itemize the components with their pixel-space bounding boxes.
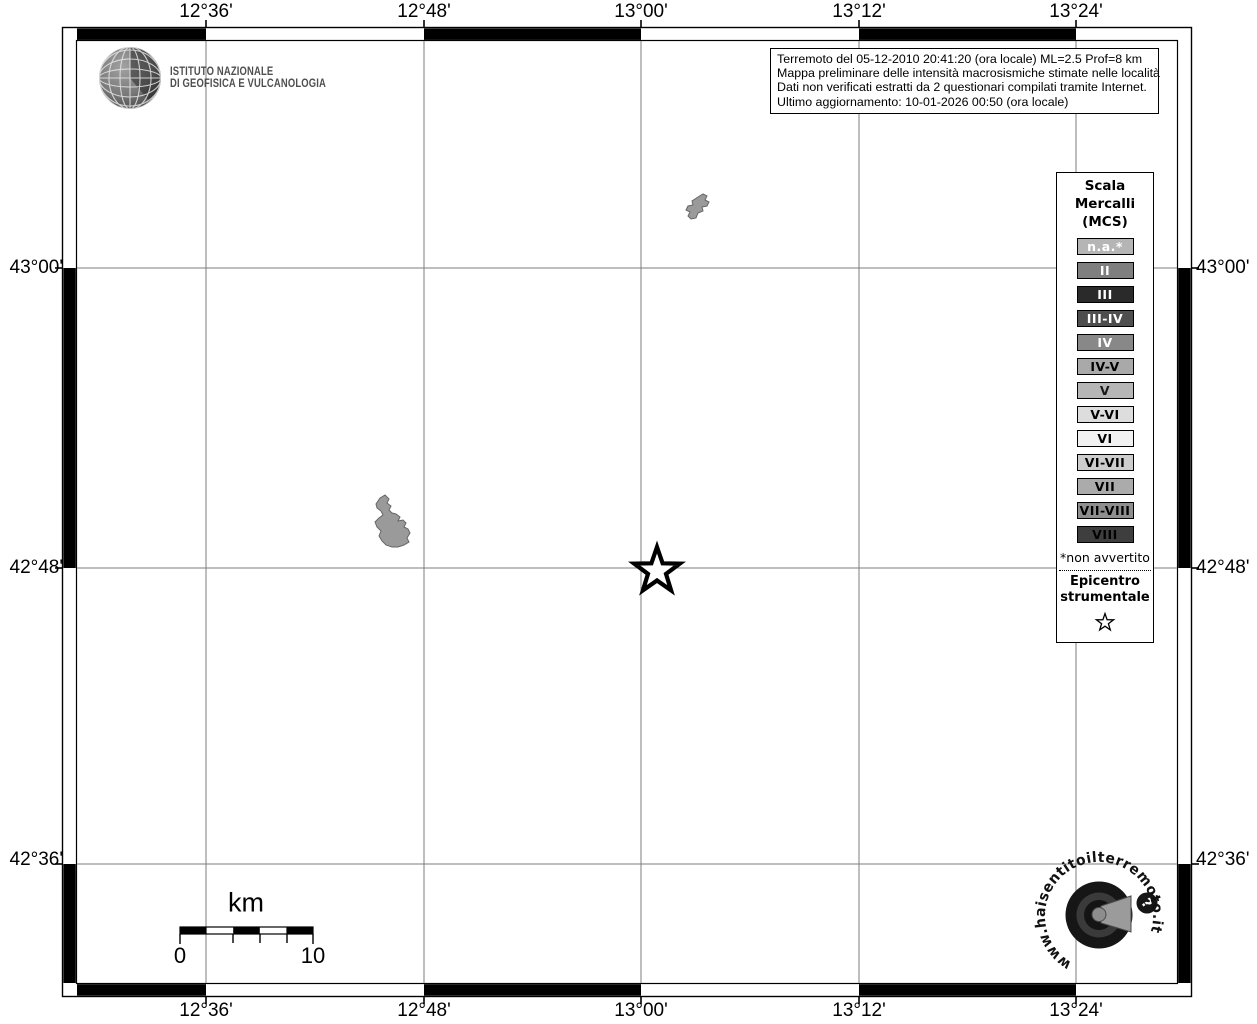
- ingv-logo: ISTITUTO NAZIONALE DI GEOFISICA E VULCAN…: [97, 45, 360, 111]
- info-line-data-source: Dati non verificati estratti da 2 questi…: [777, 80, 1152, 94]
- legend-item: VII-VIII: [1077, 502, 1134, 519]
- legend-item: IV-V: [1077, 358, 1134, 375]
- latitude-label-right: 42°36': [1196, 849, 1250, 871]
- info-line-event: Terremoto del 05-12-2010 20:41:20 (ora l…: [777, 52, 1152, 66]
- legend-item: VIII: [1077, 526, 1134, 543]
- latitude-label-right: 43°00': [1196, 257, 1250, 279]
- legend-epicenter-label: Epicentro strumentale: [1057, 574, 1153, 606]
- legend-item: II: [1077, 262, 1134, 279]
- scale-bar-start: 0: [174, 943, 186, 969]
- scale-bar-unit: km: [228, 888, 264, 919]
- longitude-label-bottom: 12°48': [397, 1000, 451, 1022]
- latitude-label-right: 42°48': [1196, 557, 1250, 579]
- latitude-label-left: 42°48': [10, 557, 64, 579]
- longitude-label-bottom: 12°36': [179, 1000, 233, 1022]
- earthquake-info-box: Terremoto del 05-12-2010 20:41:20 (ora l…: [770, 48, 1159, 114]
- latitude-label-left: 43°00': [10, 257, 64, 279]
- macroseismic-map-page: ? www.haisentitoilterremoto.it 12°36'12°…: [0, 0, 1257, 1024]
- legend-items: n.a.*IIIIIIII-IVIVIV-VVV-VIVIVI-VIIVIIVI…: [1057, 238, 1153, 543]
- intensity-legend: Scala Mercalli (MCS) n.a.*IIIIIIII-IVIVI…: [1056, 172, 1154, 643]
- ingv-logo-line2: DI GEOFISICA E VULCANOLOGIA: [170, 78, 326, 90]
- legend-item: VI: [1077, 430, 1134, 447]
- ingv-logo-line1: ISTITUTO NAZIONALE: [170, 66, 326, 78]
- legend-item: VI-VII: [1077, 454, 1134, 471]
- longitude-label-top: 13°00': [614, 1, 668, 23]
- longitude-label-top: 12°48': [397, 1, 451, 23]
- legend-item: III-IV: [1077, 310, 1134, 327]
- info-line-updated: Ultimo aggiornamento: 10-01-2026 00:50 (…: [777, 95, 1152, 109]
- legend-divider: [1059, 570, 1151, 571]
- legend-item: n.a.*: [1077, 238, 1134, 255]
- legend-item: V-VI: [1077, 406, 1134, 423]
- legend-epicenter-star-icon: [1093, 610, 1117, 634]
- longitude-label-bottom: 13°12': [832, 1000, 886, 1022]
- legend-item: VII: [1077, 478, 1134, 495]
- latitude-label-left: 42°36': [10, 849, 64, 871]
- legend-item: III: [1077, 286, 1134, 303]
- longitude-label-top: 13°24': [1049, 1, 1103, 23]
- map-frame: [63, 28, 1192, 997]
- longitude-label-top: 12°36': [179, 1, 233, 23]
- longitude-label-bottom: 13°24': [1049, 1000, 1103, 1022]
- info-line-map-type: Mappa preliminare delle intensità macros…: [777, 66, 1152, 80]
- longitude-label-top: 13°12': [832, 1, 886, 23]
- scale-bar-end: 10: [301, 943, 325, 969]
- ingv-logo-text: ISTITUTO NAZIONALE DI GEOFISICA E VULCAN…: [170, 66, 326, 90]
- longitude-label-bottom: 13°00': [614, 1000, 668, 1022]
- legend-footnote: *non avvertito: [1057, 550, 1153, 565]
- legend-title: Scala Mercalli (MCS): [1057, 177, 1153, 231]
- legend-item: IV: [1077, 334, 1134, 351]
- legend-item: V: [1077, 382, 1134, 399]
